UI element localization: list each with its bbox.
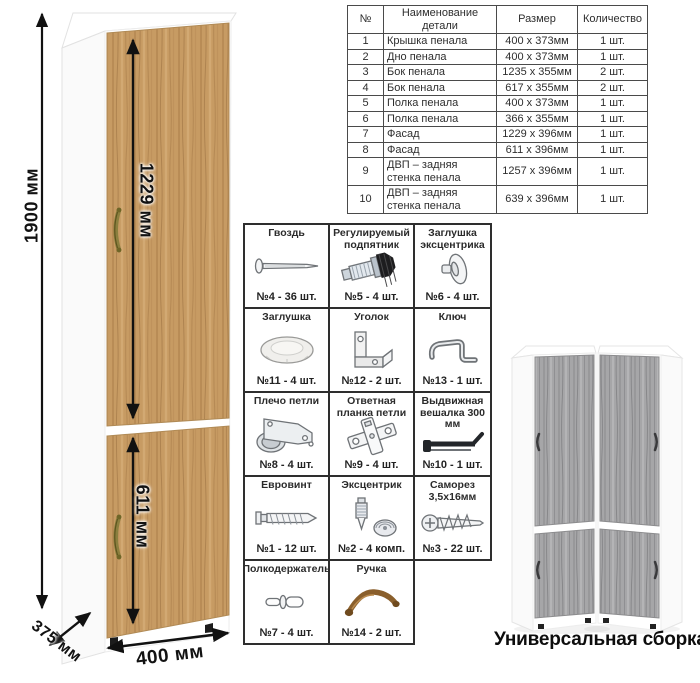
hardware-item-count: №13 - 1 шт. [422, 375, 482, 391]
cell-qty: 1 шт. [578, 127, 648, 143]
hinge-plate-icon [330, 413, 413, 459]
hardware-item: Евровинт №1 - 12 шт. [245, 477, 330, 561]
cell-name: Фасад [384, 142, 497, 158]
table-row: 1Крышка пенала400 х 373мм1 шт. [348, 34, 648, 50]
column-header: Размер [497, 6, 578, 34]
hardware-item-count: №12 - 2 шт. [341, 375, 401, 391]
hardware-item-name: Уголок [353, 309, 390, 324]
cell-size: 1257 х 396мм [497, 158, 578, 186]
hardware-item: Эксцентрик №2 - 4 комп. [330, 477, 415, 561]
hardware-item-count: №14 - 2 шт. [341, 627, 401, 643]
cell-num: 5 [348, 96, 384, 112]
table-row: 9ДВП – задняя стенка пенала1257 х 396мм1… [348, 158, 648, 186]
cell-num: 4 [348, 80, 384, 96]
pullout-hanger-icon [415, 419, 490, 459]
cell-num: 10 [348, 186, 384, 214]
corner-bracket-icon [330, 324, 413, 375]
cell-size: 400 х 373мм [497, 34, 578, 50]
hardware-item: Заглушка эксцентрика №6 - 4 шт. [415, 225, 492, 309]
hardware-item-name: Гвоздь [267, 225, 306, 240]
hardware-item-count: №3 - 22 шт. [422, 543, 482, 559]
cell-num: 3 [348, 65, 384, 81]
parts-table-header-row: №Наименование деталиРазмерКоличество [348, 6, 648, 34]
assembly-sheet: 1900 мм 1229 мм 611 мм 400 мм 375 мм №На… [0, 0, 700, 683]
cell-size: 400 х 373мм [497, 96, 578, 112]
table-row: 7Фасад1229 х 396мм1 шт. [348, 127, 648, 143]
nail-icon [245, 240, 328, 291]
cell-qty: 1 шт. [578, 96, 648, 112]
table-row: 6Полка пенала366 х 355мм1 шт. [348, 111, 648, 127]
cell-num: 7 [348, 127, 384, 143]
cell-size: 639 х 396мм [497, 186, 578, 214]
cover-cap-icon [245, 324, 328, 375]
cell-num: 1 [348, 34, 384, 50]
cell-name: Дно пенала [384, 49, 497, 65]
column-header: Наименование детали [384, 6, 497, 34]
cell-size: 366 х 355мм [497, 111, 578, 127]
hardware-item-name: Ручка [355, 561, 387, 576]
cell-num: 9 [348, 158, 384, 186]
table-row: 3Бок пенала1235 х 355мм2 шт. [348, 65, 648, 81]
column-header: № [348, 6, 384, 34]
cabinet-foot [110, 637, 118, 647]
cell-size: 1235 х 355мм [497, 65, 578, 81]
table-row: 2Дно пенала400 х 373мм1 шт. [348, 49, 648, 65]
shelf-pin-icon [245, 576, 328, 627]
hardware-item: Саморез 3,5х16мм №3 - 22 шт. [415, 477, 492, 561]
hardware-item-name: Заглушка эксцентрика [415, 225, 490, 247]
hardware-item-name: Плечо петли [253, 393, 320, 408]
cell-qty: 2 шт. [578, 80, 648, 96]
adjustable-foot-icon [330, 245, 413, 291]
universal-cabinet-left [512, 346, 610, 634]
hardware-item: Ключ №13 - 1 шт. [415, 309, 492, 393]
lower-door [107, 426, 229, 638]
cell-qty: 1 шт. [578, 34, 648, 50]
cell-qty: 1 шт. [578, 142, 648, 158]
hardware-item-count: №5 - 4 шт. [345, 291, 399, 307]
dimension-upper-door: 1229 мм [136, 157, 157, 245]
hardware-item-name: Регулируемый подпятник [330, 225, 413, 245]
hardware-item-name: Полкодержатель [245, 561, 330, 576]
cell-num: 8 [348, 142, 384, 158]
cell-num: 6 [348, 111, 384, 127]
cell-size: 1229 х 396мм [497, 127, 578, 143]
cell-name: Бок пенала [384, 80, 497, 96]
table-row: 8Фасад611 х 396мм1 шт. [348, 142, 648, 158]
hardware-grid: Гвоздь №4 - 36 шт.Регулируемый подпятник… [243, 223, 492, 645]
universal-assembly-caption: Универсальная сборка. [494, 629, 700, 651]
hardware-item: Выдвижная вешалка 300 мм №10 - 1 шт. [415, 393, 492, 477]
hardware-item: Уголок №12 - 2 шт. [330, 309, 415, 393]
hardware-item: Ответная планка петли №9 - 4 шт. [330, 393, 415, 477]
table-row: 4Бок пенала617 х 355мм2 шт. [348, 80, 648, 96]
cabinet-side-panel [62, 31, 105, 664]
hardware-item: Плечо петли №8 - 4 шт. [245, 393, 330, 477]
hardware-item-name: Заглушка [261, 309, 312, 324]
cell-name: Полка пенала [384, 111, 497, 127]
hardware-item-count: №4 - 36 шт. [256, 291, 316, 307]
cell-num: 2 [348, 49, 384, 65]
hardware-item: Ручка №14 - 2 шт. [330, 561, 415, 645]
hardware-item-count: №2 - 4 комп. [338, 543, 405, 559]
hardware-item: Гвоздь №4 - 36 шт. [245, 225, 330, 309]
hex-key-icon [415, 324, 490, 375]
upper-door [107, 23, 229, 426]
cell-size: 400 х 373мм [497, 49, 578, 65]
dimension-total-height: 1900 мм [22, 162, 43, 250]
cell-qty: 2 шт. [578, 65, 648, 81]
hardware-item-count: №7 - 4 шт. [260, 627, 314, 643]
parts-table: №Наименование деталиРазмерКоличество 1Кр… [347, 5, 648, 214]
hinge-arm-icon [245, 408, 328, 459]
cell-name: ДВП – задняя стенка пенала [384, 186, 497, 214]
parts-table-body: 1Крышка пенала400 х 373мм1 шт.2Дно пенал… [348, 34, 648, 214]
hardware-item-name: Выдвижная вешалка 300 мм [415, 393, 490, 419]
handle-icon [330, 576, 413, 627]
cell-qty: 1 шт. [578, 186, 648, 214]
cell-name: Полка пенала [384, 96, 497, 112]
cell-qty: 1 шт. [578, 49, 648, 65]
hardware-item: Полкодержатель №7 - 4 шт. [245, 561, 330, 645]
hardware-item-name: Ответная планка петли [330, 393, 413, 413]
euro-screw-icon [245, 492, 328, 543]
cam-lock-icon [330, 492, 413, 543]
hardware-item: Заглушка №11 - 4 шт. [245, 309, 330, 393]
hardware-item-name: Евровинт [260, 477, 313, 492]
hardware-item-count: №6 - 4 шт. [426, 291, 480, 307]
hardware-item-name: Ключ [438, 309, 468, 324]
column-header: Количество [578, 6, 648, 34]
cell-name: Бок пенала [384, 65, 497, 81]
cell-size: 617 х 355мм [497, 80, 578, 96]
hardware-item-count: №8 - 4 шт. [260, 459, 314, 475]
cell-qty: 1 шт. [578, 158, 648, 186]
cell-qty: 1 шт. [578, 111, 648, 127]
main-cabinet [62, 13, 236, 664]
cell-name: Фасад [384, 127, 497, 143]
cam-cap-icon [415, 247, 490, 291]
self-tapping-screw-icon [415, 503, 490, 543]
cell-size: 611 х 396мм [497, 142, 578, 158]
dimension-lower-door: 611 мм [132, 477, 153, 557]
hardware-item-count: №10 - 1 шт. [422, 459, 482, 475]
hardware-item-name: Саморез 3,5х16мм [415, 477, 490, 503]
hardware-item: Регулируемый подпятник №5 - 4 шт. [330, 225, 415, 309]
table-row: 5Полка пенала400 х 373мм1 шт. [348, 96, 648, 112]
hardware-item-count: №11 - 4 шт. [257, 375, 317, 391]
empty-cell [415, 561, 492, 645]
hardware-item-count: №1 - 12 шт. [256, 543, 316, 559]
universal-cabinet-right [584, 346, 682, 634]
cell-name: Крышка пенала [384, 34, 497, 50]
table-row: 10ДВП – задняя стенка пенала639 х 396мм1… [348, 186, 648, 214]
cell-name: ДВП – задняя стенка пенала [384, 158, 497, 186]
hardware-item-name: Эксцентрик [340, 477, 402, 492]
hardware-item-count: №9 - 4 шт. [345, 459, 399, 475]
